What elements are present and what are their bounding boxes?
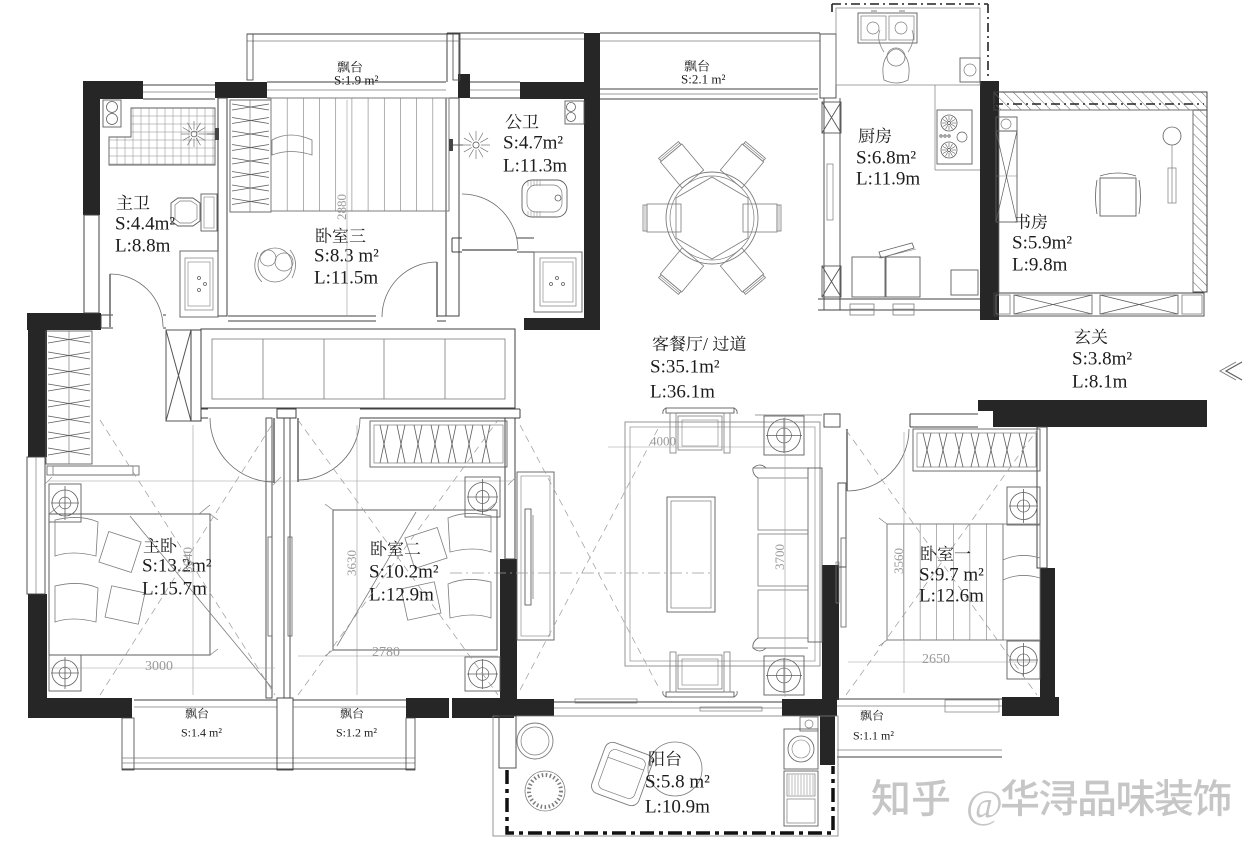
svg-text:S:13.2m²: S:13.2m² (142, 556, 212, 577)
svg-text:3560: 3560 (891, 548, 906, 574)
svg-text:L:12.6m: L:12.6m (919, 586, 984, 607)
svg-text:S:2.1 m²: S:2.1 m² (681, 71, 725, 86)
svg-text:3000: 3000 (145, 659, 173, 674)
svg-text:/: / (703, 334, 708, 354)
svg-text:S:1.4 m²: S:1.4 m² (181, 726, 222, 740)
svg-text:L:11.3m: L:11.3m (503, 156, 567, 177)
svg-text:S:6.8m²: S:6.8m² (856, 148, 916, 169)
svg-text:L:11.9m: L:11.9m (856, 169, 920, 190)
svg-text:@: @ (966, 782, 1003, 827)
svg-text:S:4.4m²: S:4.4m² (115, 214, 175, 235)
svg-text:2650: 2650 (922, 652, 950, 667)
svg-text:S:1.9 m²: S:1.9 m² (334, 72, 378, 87)
svg-text:L:36.1m: L:36.1m (650, 382, 715, 403)
svg-text:L:15.7m: L:15.7m (142, 579, 207, 600)
svg-text:S:1.2 m²: S:1.2 m² (336, 726, 377, 740)
svg-text:S:5.8 m²: S:5.8 m² (645, 772, 710, 793)
svg-text:L:11.5m: L:11.5m (314, 268, 378, 289)
svg-text:S:9.7 m²: S:9.7 m² (919, 565, 984, 586)
svg-text:3700: 3700 (772, 544, 787, 570)
svg-text:S:8.3 m²: S:8.3 m² (314, 246, 379, 267)
svg-text:2780: 2780 (372, 645, 400, 660)
svg-text:3640: 3640 (180, 547, 195, 573)
svg-text:S:3.8m²: S:3.8m² (1072, 349, 1132, 370)
svg-text:S:5.9m²: S:5.9m² (1012, 233, 1072, 254)
svg-text:L:10.9m: L:10.9m (645, 797, 710, 818)
svg-text:L:12.9m: L:12.9m (369, 585, 434, 606)
svg-text:L:8.1m: L:8.1m (1072, 372, 1128, 393)
svg-text:L:9.8m: L:9.8m (1012, 255, 1068, 276)
svg-text:2880: 2880 (334, 194, 349, 220)
svg-text:S:35.1m²: S:35.1m² (650, 357, 720, 378)
svg-text:4000: 4000 (650, 433, 676, 448)
svg-text:S:10.2m²: S:10.2m² (369, 562, 439, 583)
svg-text:S:1.1 m²: S:1.1 m² (853, 729, 894, 743)
svg-text:3630: 3630 (344, 550, 359, 576)
svg-text:L:8.8m: L:8.8m (115, 236, 171, 257)
svg-text:S:4.7m²: S:4.7m² (503, 133, 563, 154)
